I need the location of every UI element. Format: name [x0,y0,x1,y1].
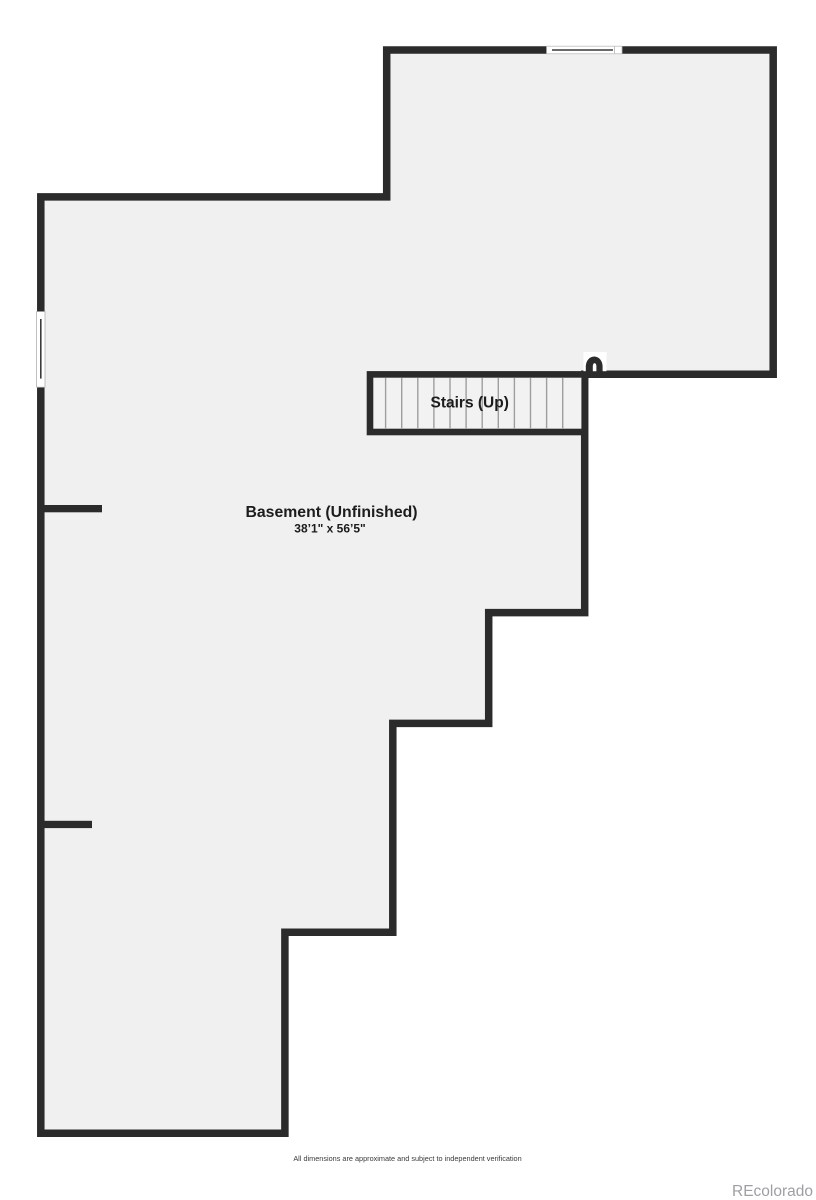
svg-text:REcolorado: REcolorado [732,1183,813,1200]
svg-text:38’1" x 56’5": 38’1" x 56’5" [294,522,365,536]
svg-text:All dimensions are approximate: All dimensions are approximate and subje… [293,1154,521,1163]
svg-text:Basement (Unfinished): Basement (Unfinished) [245,504,417,521]
svg-text:Stairs (Up): Stairs (Up) [431,395,509,412]
